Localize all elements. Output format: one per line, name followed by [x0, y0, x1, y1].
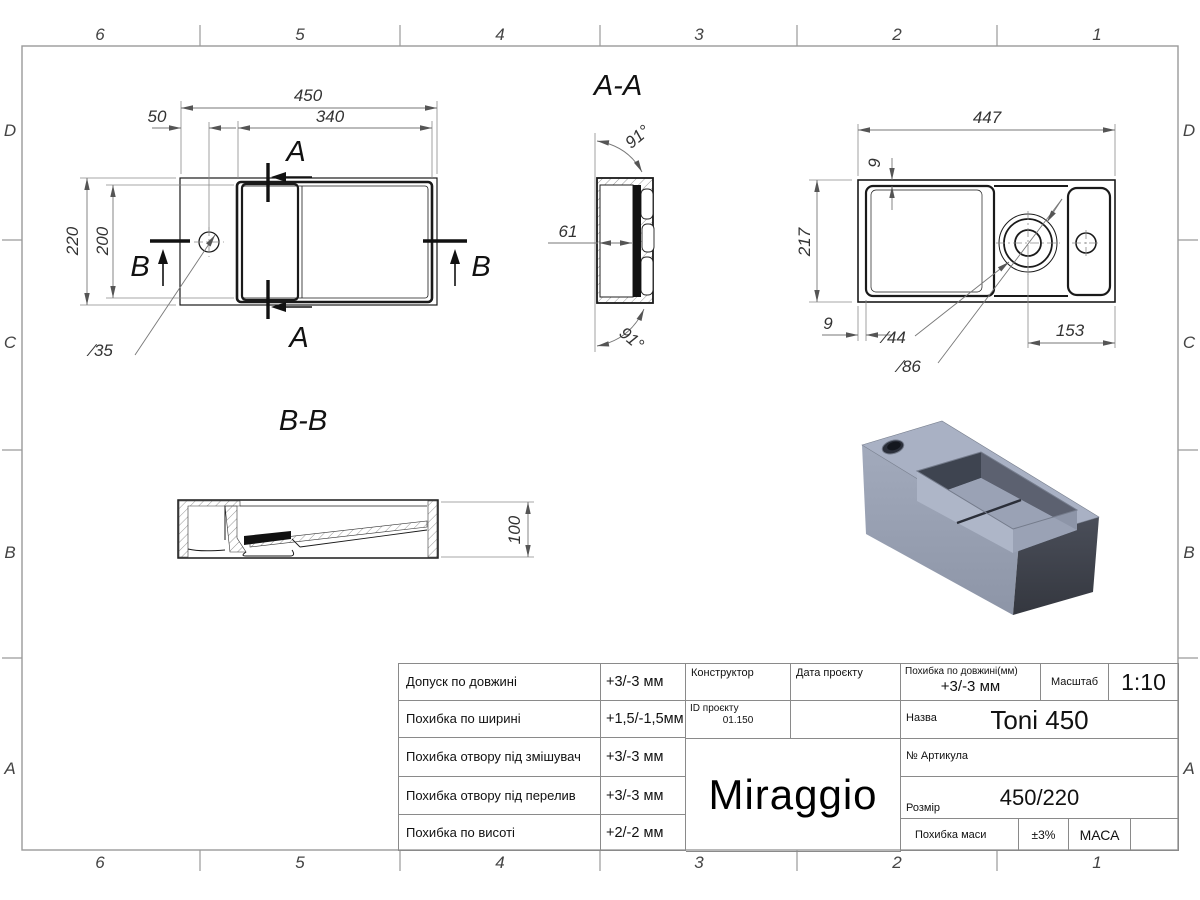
cut-label-b-left: B: [130, 251, 149, 283]
zone-row: B: [4, 543, 15, 562]
dim-bottom-width: 447: [973, 108, 1002, 127]
cut-label-b-right: B: [471, 251, 490, 283]
section-cut-a: A A: [268, 136, 312, 354]
dim-angle-top: 91°: [622, 121, 654, 152]
dim-height: 100: [505, 515, 524, 544]
zone-row: C: [1183, 333, 1196, 352]
tolerance-label: Похибка по ширині: [399, 701, 601, 738]
zone-col: 5: [295, 853, 305, 872]
project-date-cell: Дата проєкту: [791, 664, 901, 701]
zone-row: D: [1183, 121, 1195, 140]
zone-col: 4: [495, 853, 504, 872]
dim-bottom-depth: 217: [795, 227, 814, 257]
zone-row: C: [4, 333, 17, 352]
dim-depth: 220: [63, 226, 82, 256]
tolerance-value: +3/-3 мм: [601, 664, 686, 701]
length-tolerance-value: +3/-3 мм: [901, 678, 1040, 695]
zone-row: B: [1183, 543, 1194, 562]
zone-labels-bottom: 6 5 4 3 2 1: [95, 853, 1101, 872]
constructor-cell: Конструктор: [686, 664, 791, 701]
tolerance-value: +2/-2 мм: [601, 815, 686, 851]
tolerance-value: +3/-3 мм: [601, 777, 686, 815]
project-id-label: ID проєкту: [686, 701, 790, 714]
section-aa-view: A-A 91° 91° 61: [548, 70, 654, 354]
dim-angle-bottom: 91°: [616, 323, 648, 354]
zone-col: 1: [1092, 853, 1101, 872]
section-bb-view: B-B 100: [178, 405, 534, 558]
mass-label-cell: МАСА: [1069, 819, 1131, 851]
dim-rim-left: 9: [823, 314, 833, 333]
dim-faucet-offset: 50: [148, 107, 167, 126]
zone-row: D: [4, 121, 16, 140]
dim-drain-hole: ∕44: [879, 328, 906, 347]
empty-cell: [791, 701, 901, 739]
zone-col: 5: [295, 25, 305, 44]
name-cell: Назва Toni 450: [901, 701, 1179, 739]
length-tolerance-cell: Похибка по довжині(мм) +3/-3 мм: [901, 664, 1041, 701]
zone-row: A: [3, 759, 15, 778]
isometric-view: [862, 421, 1099, 615]
zone-col: 2: [891, 853, 902, 872]
dim-faucet-hole: ∕35: [86, 341, 113, 360]
zone-col: 1: [1092, 25, 1101, 44]
name-value: Toni 450: [901, 705, 1178, 736]
section-aa-title: A-A: [592, 70, 642, 102]
size-value: 450/220: [901, 785, 1178, 811]
tolerance-label: Похибка отвору під змішувач: [399, 738, 601, 777]
dim-rim-top: 9: [865, 158, 884, 168]
mass-tolerance-label-cell: Похибка маси: [901, 819, 1019, 851]
empty-cell: [1131, 819, 1179, 851]
cut-label-a-bottom: A: [287, 322, 308, 354]
drawing-sheet: 6 5 4 3 2 1 6 5 4 3 2 1 D C B A D C B A: [0, 0, 1200, 900]
project-id-cell: ID проєкту 01.150: [686, 701, 791, 739]
project-id-value: 01.150: [686, 715, 790, 726]
dim-wall-width: 61: [559, 222, 578, 241]
zone-row: A: [1182, 759, 1194, 778]
section-bb-title: B-B: [279, 405, 327, 437]
cut-label-a-top: A: [284, 136, 305, 168]
zone-col: 3: [694, 853, 704, 872]
zone-col: 6: [95, 853, 105, 872]
zone-col: 2: [891, 25, 902, 44]
zone-col: 6: [95, 25, 105, 44]
scale-label-cell: Масштаб: [1041, 664, 1109, 701]
zone-labels-top: 6 5 4 3 2 1: [95, 25, 1101, 44]
tolerance-label: Допуск по довжині: [399, 664, 601, 701]
tolerance-label: Похибка по висоті: [399, 815, 601, 851]
scale-value-cell: 1:10: [1109, 664, 1179, 701]
article-label: № Артикула: [901, 747, 968, 762]
brand-logo: Miraggio: [686, 739, 901, 852]
dim-width: 450: [294, 86, 323, 105]
tolerance-label: Похибка отвору під перелив: [399, 777, 601, 815]
title-block: Допуск по довжині +3/-3 мм Похибка по ши…: [398, 663, 1179, 851]
zone-col: 4: [495, 25, 504, 44]
dim-drain-offset: 153: [1056, 321, 1085, 340]
zone-col: 3: [694, 25, 704, 44]
dim-drain-recess: ∕86: [894, 357, 921, 376]
tolerance-value: +1,5/-1,5мм: [601, 701, 686, 738]
length-tolerance-label: Похибка по довжині(мм): [901, 664, 1040, 677]
size-cell: Розмір 450/220: [901, 777, 1179, 819]
article-cell: № Артикула: [901, 739, 1179, 777]
bottom-view: 447 217 9 9 153 ∕44 ∕86: [795, 108, 1115, 376]
dim-basin-width: 340: [316, 107, 345, 126]
plan-view: 450 340 50 220 200 ∕35 A A B B: [63, 86, 491, 360]
dim-basin-depth: 200: [93, 226, 112, 256]
mass-tolerance-value-cell: ±3%: [1019, 819, 1069, 851]
tolerance-value: +3/-3 мм: [601, 738, 686, 777]
